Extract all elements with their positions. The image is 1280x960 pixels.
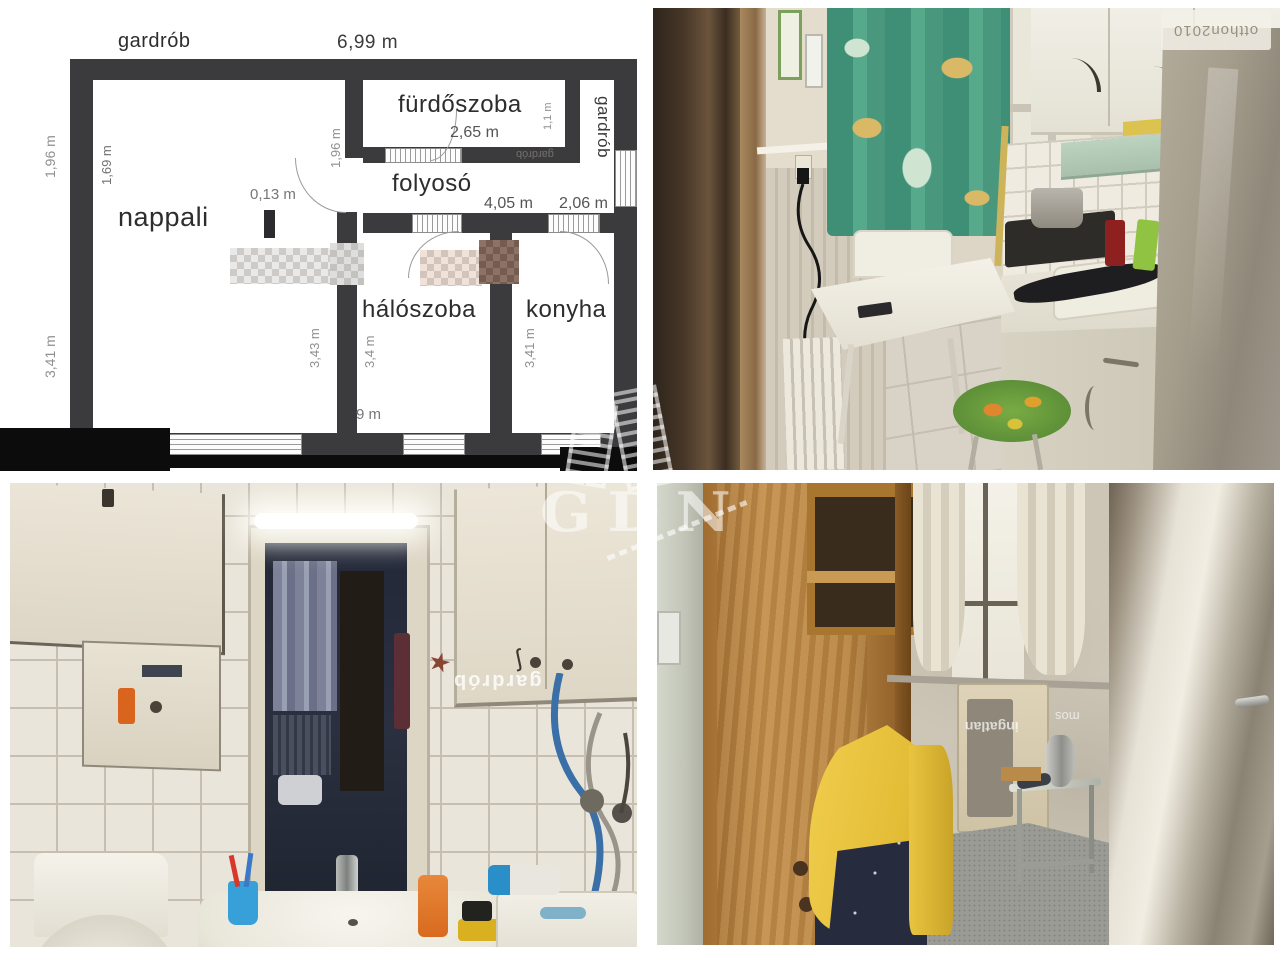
kitchen-curtain bbox=[827, 8, 1010, 236]
bedroom-cabinet-watermark: ingatlan bbox=[965, 719, 1019, 735]
plan-label-closet-right: gardrób bbox=[593, 96, 613, 158]
plan-label-kitchen: konyha bbox=[526, 296, 606, 324]
bathroom-cabinet-knob-3 bbox=[562, 659, 573, 670]
plan-window-bedroom bbox=[403, 434, 465, 455]
plan-censored-area-3 bbox=[420, 250, 482, 286]
plan-wall-left bbox=[70, 59, 93, 455]
bedroom-cabinet-front bbox=[967, 699, 1013, 817]
kitchen-lower-handle bbox=[1085, 386, 1105, 430]
plan-dim-left-top: 1,96 m bbox=[42, 135, 58, 178]
plan-dim-bottom-fragment: 9 m bbox=[356, 406, 381, 423]
bathroom-door-view-bed bbox=[278, 775, 322, 805]
bedroom-window-bar-v bbox=[983, 483, 988, 679]
bedroom-light-switch bbox=[657, 611, 681, 665]
bathroom-fluorescent-light bbox=[254, 513, 418, 529]
bedroom-wall-watermark: mos bbox=[1055, 709, 1080, 724]
bathroom-orange-bottle bbox=[418, 875, 448, 937]
plan-wall-bath-right bbox=[565, 80, 580, 163]
plan-label-closet-top: gardrób bbox=[118, 30, 190, 53]
plan-dim-kitchen-wall: 3,41 m bbox=[522, 328, 537, 368]
kitchen-picture-frame-1 bbox=[778, 10, 802, 80]
plan-dim-living-offset: 0,13 m bbox=[250, 186, 296, 203]
bedroom-blanket-drape bbox=[909, 745, 953, 935]
plan-censored-area-1 bbox=[230, 248, 330, 284]
bathroom-cabinet-knob-2 bbox=[530, 657, 541, 668]
bedroom-curtain-left bbox=[913, 483, 965, 671]
bedroom-door bbox=[1109, 483, 1274, 945]
plan-label-bathroom: fürdőszoba bbox=[398, 91, 522, 119]
plan-censored-area-2 bbox=[330, 243, 364, 285]
bathroom-sink-drain bbox=[348, 919, 358, 926]
bedroom-wood-box bbox=[1001, 767, 1041, 781]
bathroom-upper-right-divider bbox=[545, 483, 547, 689]
plan-faint-watermark: gardrób bbox=[516, 148, 554, 160]
bathroom-washer-items bbox=[488, 865, 560, 895]
kitchen-corner-watermark-text: otthon2010 bbox=[1173, 22, 1258, 39]
bathroom-washer-lid-handle bbox=[540, 907, 586, 919]
kitchen-picture-frame-2 bbox=[805, 34, 823, 88]
plan-dim-left-bottom: 3,41 m bbox=[42, 335, 58, 378]
bathroom-door-view-wardrobe bbox=[340, 571, 384, 791]
kitchen-red-bottle bbox=[1105, 220, 1125, 266]
floorplan: gardrób 6,99 m fürdőszoba folyosó nappal… bbox=[0, 0, 640, 471]
photo-collage: gardrób 6,99 m fürdőszoba folyosó nappal… bbox=[0, 0, 1280, 960]
bedroom-left-frame bbox=[657, 483, 703, 945]
plan-dim-bedroom-wall: 3,4 m bbox=[362, 335, 377, 368]
kitchen-cabinet-door-line-1 bbox=[1108, 8, 1110, 126]
plan-base-block-right bbox=[560, 447, 637, 471]
kitchen-radiator bbox=[783, 337, 846, 470]
bathroom-cabinet-knob bbox=[150, 701, 162, 713]
plan-wall-top bbox=[70, 59, 637, 80]
bedroom-table-leg-1 bbox=[1017, 789, 1022, 885]
bathroom-black-brush bbox=[462, 901, 492, 921]
bathroom-shelf-box bbox=[142, 665, 182, 677]
bathroom-door-view-window bbox=[273, 561, 337, 711]
plan-label-bedroom: hálószoba bbox=[362, 296, 476, 324]
bedroom-wardrobe-shelf-board bbox=[807, 571, 908, 583]
plan-wall-living-bath bbox=[345, 80, 363, 158]
plan-base-block-left bbox=[0, 428, 170, 471]
plan-door-arc-kitchen bbox=[560, 231, 609, 284]
bathroom-shelf-bottle bbox=[118, 688, 135, 724]
kitchen-stool-cushion bbox=[953, 380, 1071, 442]
plan-window-right bbox=[615, 150, 637, 207]
plan-door-kitchen-hatch bbox=[548, 214, 600, 233]
plan-dim-hall-length: 4,05 m bbox=[484, 195, 533, 213]
plan-dim-hall-end: 2,06 m bbox=[559, 195, 608, 213]
bathroom-tile-watermark: gardrób bbox=[452, 669, 542, 692]
bathroom-hook-decor bbox=[102, 489, 114, 507]
kitchen-door-frame bbox=[740, 8, 766, 470]
plan-dim-left-inner: 1,69 m bbox=[99, 145, 114, 185]
plan-window-bath bbox=[385, 148, 462, 163]
plan-pillar bbox=[264, 210, 275, 238]
bedroom-wardrobe-knob-1 bbox=[793, 861, 808, 876]
bathroom-cup bbox=[228, 881, 258, 925]
kitchen-corner-watermark: otthon2010 bbox=[1161, 10, 1271, 50]
bedroom-curtain-right bbox=[1017, 483, 1085, 675]
kitchen-pot bbox=[1031, 188, 1083, 228]
plan-label-hallway: folyosó bbox=[392, 170, 472, 198]
plan-censored-area-4 bbox=[479, 240, 519, 284]
plan-dim-bedroom-left: 3,43 m bbox=[307, 328, 322, 368]
bathroom-door-view-radiator bbox=[273, 715, 331, 775]
bathroom-washing-machine bbox=[496, 891, 637, 947]
kitchen-photo: otthon2010 bbox=[653, 8, 1280, 470]
plan-wall-right bbox=[614, 59, 637, 455]
bathroom-photo: ★ ʃ gardrób bbox=[10, 483, 637, 947]
bathroom-door-towel bbox=[394, 633, 410, 729]
bedroom-photo: ingatlan mos bbox=[657, 483, 1274, 945]
bathroom-upper-left-cabinet bbox=[10, 483, 225, 655]
plan-dim-bathroom-width: 2,65 m bbox=[450, 124, 499, 142]
plan-dim-living-wall: 1,96 m bbox=[328, 128, 343, 168]
plan-dim-bath-depth: 1,1 m bbox=[542, 102, 554, 130]
plan-label-living: nappali bbox=[118, 202, 209, 233]
plan-dim-top-width-text: 6,99 m bbox=[337, 32, 398, 54]
